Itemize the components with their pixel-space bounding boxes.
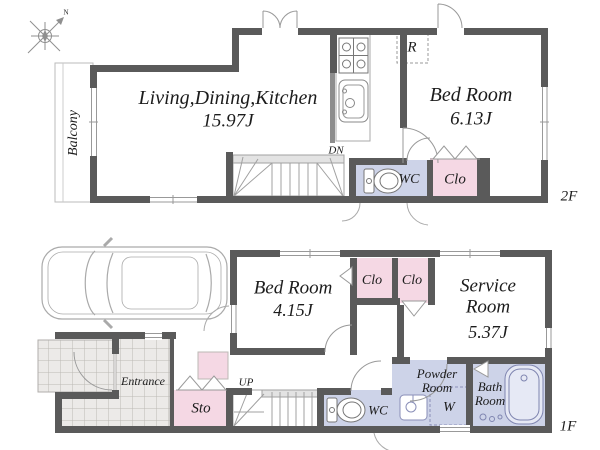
room-closet2f-label: Clo xyxy=(444,173,466,188)
washer-label: W xyxy=(443,401,455,415)
toilet-icon-2f xyxy=(364,169,402,193)
room-wc2f-label: WC xyxy=(399,173,420,187)
room-closet2-label: Clo xyxy=(402,274,422,288)
stairs-down-label: DN xyxy=(328,146,343,157)
car-icon xyxy=(42,238,227,328)
room-storage-label: Sto xyxy=(191,402,210,417)
room-closet1-label: Clo xyxy=(362,274,382,288)
room-service-size: 5.37J xyxy=(468,323,508,341)
room-bath-label: Bath Room xyxy=(468,380,512,408)
stairs-up-icon xyxy=(233,390,318,427)
room-bedroom2f-label: Bed Room xyxy=(430,85,513,105)
room-ldk-label: Living,Dining,Kitchen xyxy=(139,88,318,108)
refrigerator-label: R xyxy=(407,41,416,56)
compass-icon xyxy=(28,17,64,53)
stairs-up-label: UP xyxy=(239,378,254,389)
floor2-doors xyxy=(403,128,480,163)
balcony-label: Balcony xyxy=(67,110,81,156)
room-powder-label: Powder Room xyxy=(407,367,467,395)
room-bedroom1f-size: 4.15J xyxy=(273,301,313,319)
stairs-down-icon xyxy=(233,155,344,196)
compass-north-label: N xyxy=(63,10,68,17)
entrance-label: Entrance xyxy=(121,375,165,387)
room-wc1f-label: WC xyxy=(368,404,388,417)
toilet-icon-1f xyxy=(327,398,365,422)
floorplan: Living,Dining,Kitchen 15.97J Bed Room 6.… xyxy=(0,0,600,450)
floor2-tag: 2F xyxy=(561,190,578,205)
room-service-label: Service Room xyxy=(446,276,530,317)
room-bedroom2f-size: 6.13J xyxy=(450,110,492,129)
room-bedroom1f-label: Bed Room xyxy=(254,279,333,298)
floor1-tag: 1F xyxy=(560,420,577,435)
room-ldk-size: 15.97J xyxy=(202,112,253,131)
